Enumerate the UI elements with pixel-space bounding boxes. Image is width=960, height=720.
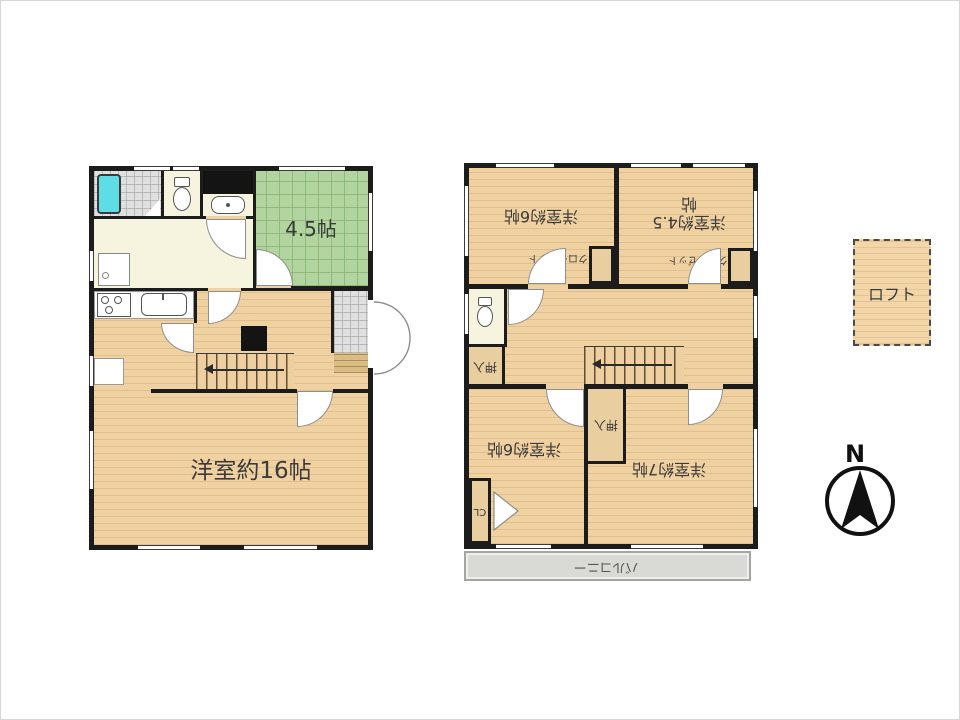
entrance-step — [334, 353, 368, 373]
washbasin-drain — [226, 203, 230, 207]
oshiire-center-label: 押入 — [588, 416, 624, 432]
closet-ne — [728, 248, 753, 284]
wall — [723, 384, 758, 389]
room-nw-label: 洋室約6帖 — [488, 206, 594, 226]
window — [464, 294, 469, 334]
window — [631, 163, 681, 168]
window — [753, 296, 758, 338]
window — [173, 166, 199, 171]
entrance-tile — [334, 291, 368, 353]
toilet-bowl-icon — [173, 187, 191, 211]
room-ne-label-line2: 帖 — [681, 195, 697, 213]
window — [138, 545, 200, 550]
window — [134, 166, 170, 171]
kitchen-sink-icon — [141, 293, 187, 316]
window — [693, 163, 745, 168]
window — [464, 186, 469, 256]
burner-icon — [101, 296, 109, 304]
toilet-tank-icon — [174, 177, 190, 187]
living-room-label: 洋室約16帖 — [156, 457, 346, 485]
stairs-arrowhead-2f — [587, 359, 601, 369]
window — [496, 163, 554, 168]
oshiire-nw-label: 押入 — [467, 358, 503, 374]
cl-closet-label: CL — [469, 503, 491, 519]
stairs-arrow — [208, 369, 284, 371]
burner-icon — [105, 306, 113, 314]
wall — [504, 289, 507, 344]
window — [89, 431, 94, 489]
wall — [568, 284, 688, 289]
window — [631, 544, 703, 549]
tatami-room-label: 4.5帖 — [271, 217, 351, 241]
entrance-double-door-icon — [372, 296, 418, 376]
window — [496, 544, 551, 549]
wall — [721, 284, 758, 289]
north-compass-icon: N — [815, 437, 905, 539]
wall — [333, 389, 369, 393]
compass-arrow — [841, 470, 879, 529]
window — [753, 191, 758, 251]
wall — [241, 288, 333, 291]
toilet-bowl-icon-2f — [477, 306, 493, 327]
room-se-label: 洋室約7帖 — [616, 459, 722, 479]
window — [244, 545, 317, 550]
window — [89, 251, 94, 281]
faucet-icon — [162, 293, 164, 300]
loft: ロフト — [853, 239, 931, 346]
toilet-tank-icon-2f — [478, 297, 492, 306]
loft-label: ロフト — [868, 281, 916, 305]
room-ne-label: 洋室約4.5 帖 — [642, 192, 736, 234]
window — [368, 193, 373, 251]
wall — [614, 163, 619, 284]
balcony-label: バルコニー — [481, 558, 731, 574]
pillar — [241, 326, 267, 351]
floorplan-image: 4.5帖 洋室約16帖 — [0, 0, 960, 720]
wall — [464, 384, 546, 389]
window — [753, 429, 758, 507]
room-ne-label-line1: 洋室約4.5 — [652, 213, 725, 231]
wall — [151, 389, 297, 393]
stairs-arrow-2f — [596, 364, 672, 366]
storage-black — [203, 171, 253, 194]
bathtub — [97, 174, 121, 214]
washing-machine-icon — [98, 253, 130, 286]
cl-door-icon — [493, 491, 519, 531]
bay-counter — [94, 358, 124, 385]
compass-n-label: N — [845, 440, 865, 468]
closet-nw — [589, 246, 614, 284]
burner-icon — [114, 296, 122, 304]
room-sw-label: 洋室約6帖 — [471, 439, 577, 459]
wall — [194, 291, 197, 323]
window — [279, 166, 345, 171]
washing-machine-dial — [102, 272, 109, 279]
stairs-arrowhead — [199, 364, 213, 374]
